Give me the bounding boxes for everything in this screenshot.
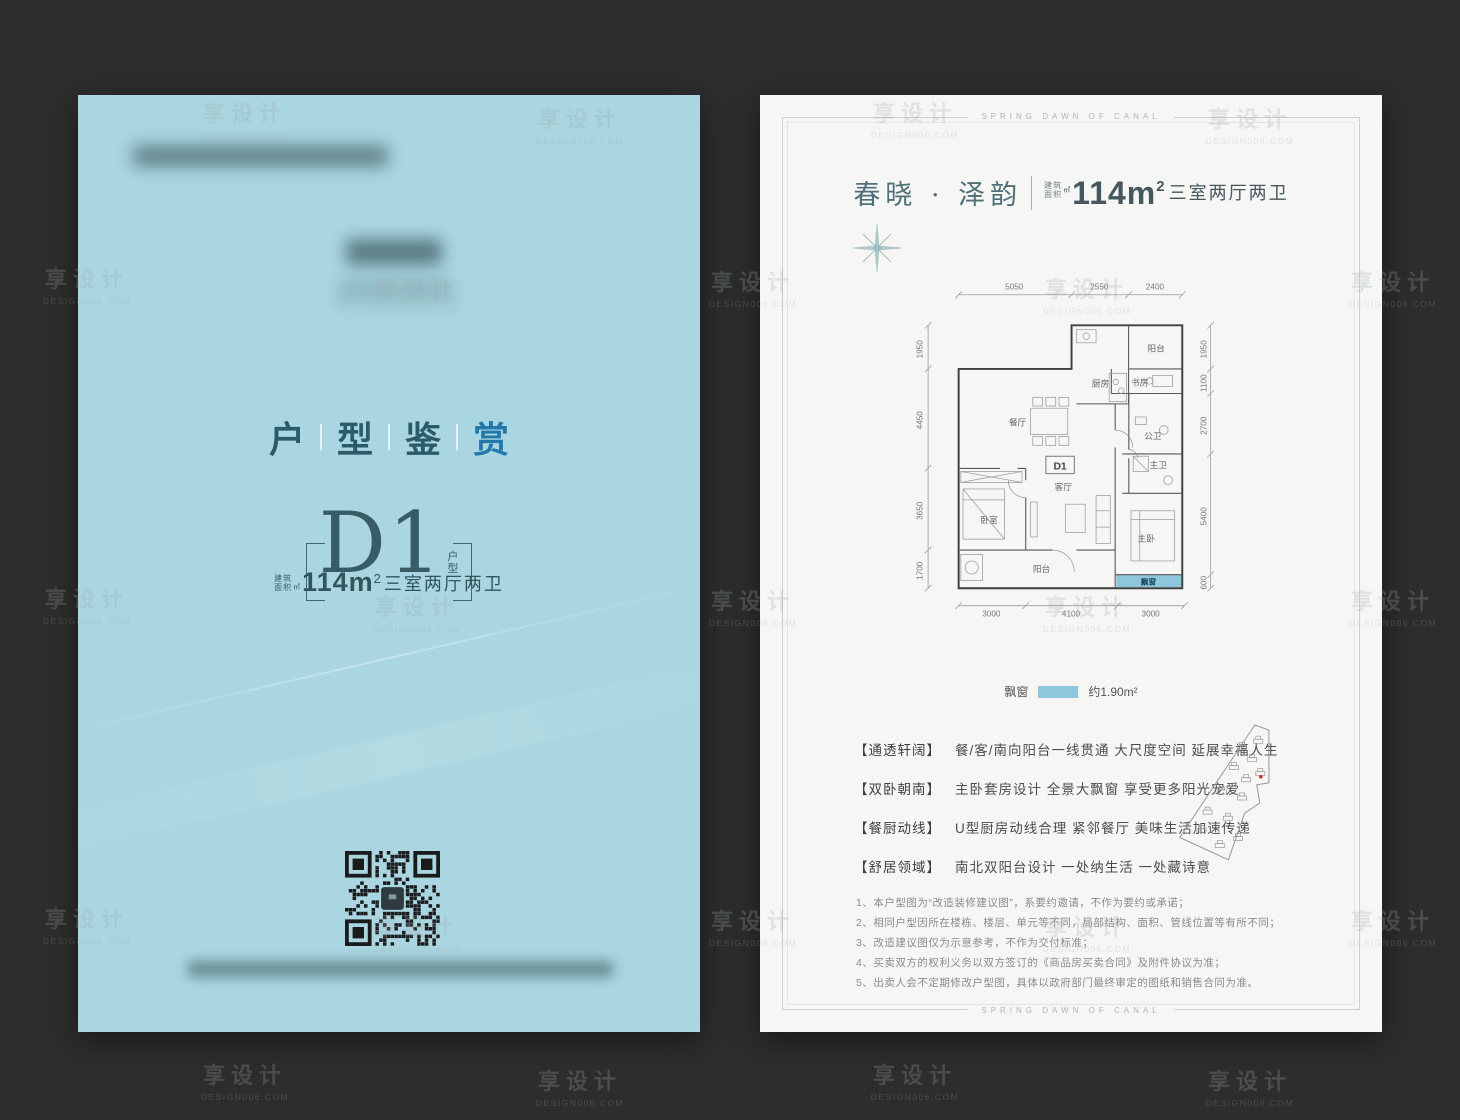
legend-label: 飘窗	[1004, 683, 1028, 700]
svg-text:3650: 3650	[916, 501, 925, 520]
title-separator	[456, 424, 458, 450]
area-label-stack: 建筑面积	[1044, 181, 1062, 199]
unit-spec: 建筑面积 ㎡ 114m 2 三室两厅两卫	[78, 569, 700, 596]
title-char: 鉴	[405, 411, 441, 463]
title-separator	[320, 424, 322, 450]
blurred-center-subtext-2	[334, 295, 456, 303]
site-buildings	[1197, 736, 1265, 847]
svg-text:主卧: 主卧	[1138, 532, 1156, 543]
svg-text:2550: 2550	[1090, 282, 1109, 291]
svg-text:4100: 4100	[1062, 610, 1081, 619]
svg-text:1950: 1950	[1199, 340, 1208, 359]
qr-code	[345, 851, 440, 946]
svg-text:1100: 1100	[1199, 374, 1208, 392]
title-char: 户	[269, 411, 305, 463]
left-poster-page: 户 型 鉴 赏 D1户型 建筑面积 ㎡ 114m 2 三室两厅两卫	[78, 95, 700, 1032]
disclaimer-item: 1、本户型图为“改造装修建议图”，系要约邀请，不作为要约或承诺；	[856, 893, 1280, 913]
svg-text:2400: 2400	[1146, 282, 1165, 291]
legend-swatch	[1038, 686, 1078, 698]
disclaimer-item: 4、买卖双方的权利义务以双方签订的《商品房买卖合同》及附件协议为准；	[856, 953, 1280, 973]
svg-text:飘窗: 飘窗	[1141, 576, 1157, 586]
area-superscript: 2	[374, 572, 381, 585]
svg-text:3000: 3000	[1142, 610, 1161, 619]
room-count: 三室两厅两卫	[384, 574, 504, 594]
svg-text:1950: 1950	[916, 340, 925, 359]
disclaimer-item: 5、出卖人会不定期修改户型图，具体以政府部门最终审定的图纸和销售合同为准。	[856, 973, 1280, 993]
svg-text:600: 600	[1199, 576, 1208, 590]
area-unit: ㎡	[1063, 185, 1070, 195]
svg-text:客厅: 客厅	[1055, 481, 1073, 492]
svg-text:5050: 5050	[1005, 282, 1024, 291]
bay-window-legend: 飘窗 约1.90m²	[760, 683, 1382, 700]
svg-text:阳台: 阳台	[1033, 563, 1051, 574]
title-char: 赏	[473, 411, 509, 463]
svg-text:书房: 书房	[1131, 376, 1148, 387]
project-name: 春晓 · 泽韵	[853, 173, 1022, 212]
unit-label: D1	[1053, 461, 1066, 472]
site-highlight-dot	[1259, 775, 1263, 779]
room-count: 三室两厅两卫	[1169, 179, 1289, 205]
border-text-bottom: SPRING DAWN OF CANAL	[967, 1006, 1174, 1015]
floorplan: 5050 2550 2400 3000 4100 3000 1950 4450 …	[891, 275, 1251, 673]
site-plan	[1178, 723, 1296, 875]
svg-text:厨房: 厨房	[1092, 377, 1109, 388]
area-number: 114m	[302, 569, 374, 596]
title-char: 型	[337, 411, 373, 463]
blurred-address-bar	[188, 961, 613, 977]
right-floorplan-page: SPRING DAWN OF CANAL SPRING DAWN OF CANA…	[760, 95, 1382, 1032]
disclaimer-item: 2、相同户型因所在楼栋、楼层、单元等不同，局部结构、面积、管线位置等有所不同；	[856, 913, 1280, 933]
area-unit: ㎡	[293, 582, 300, 592]
blurred-center-logo	[346, 239, 442, 265]
svg-text:4450: 4450	[916, 411, 925, 430]
light-streak-soft	[78, 650, 700, 860]
area-superscript: 2	[1156, 178, 1164, 195]
svg-text:1700: 1700	[916, 561, 925, 580]
blurred-top-logo	[133, 145, 388, 167]
area-number: 114m	[1072, 177, 1156, 209]
svg-text:3000: 3000	[982, 610, 1001, 619]
compass-icon	[852, 223, 902, 273]
dimension-lines	[925, 292, 1214, 609]
svg-text:5400: 5400	[1199, 507, 1208, 526]
legend-value: 约1.90m²	[1088, 683, 1137, 700]
right-page-title: 春晓 · 泽韵 建筑面积 ㎡ 114m 2 三室两厅两卫	[760, 173, 1382, 212]
title-divider	[1031, 176, 1032, 210]
area-label-stack: 建筑面积	[274, 574, 292, 592]
svg-text:公卫: 公卫	[1144, 431, 1162, 441]
svg-text:阳台: 阳台	[1147, 343, 1165, 354]
border-text-top: SPRING DAWN OF CANAL	[967, 112, 1174, 121]
svg-text:卧室: 卧室	[980, 514, 998, 525]
disclaimer-item: 3、改造建议图仅为示意参考，不作为交付标准；	[856, 933, 1280, 953]
title-separator	[388, 424, 390, 450]
svg-text:餐厅: 餐厅	[1009, 417, 1027, 428]
blurred-center-subtext-1	[340, 281, 452, 290]
left-page-title: 户 型 鉴 赏	[78, 411, 700, 463]
svg-text:2700: 2700	[1199, 416, 1208, 435]
svg-text:主卫: 主卫	[1150, 459, 1168, 470]
door-arcs	[1008, 430, 1137, 572]
disclaimer-list: 1、本户型图为“改造装修建议图”，系要约邀请，不作为要约或承诺； 2、相同户型因…	[856, 893, 1280, 993]
